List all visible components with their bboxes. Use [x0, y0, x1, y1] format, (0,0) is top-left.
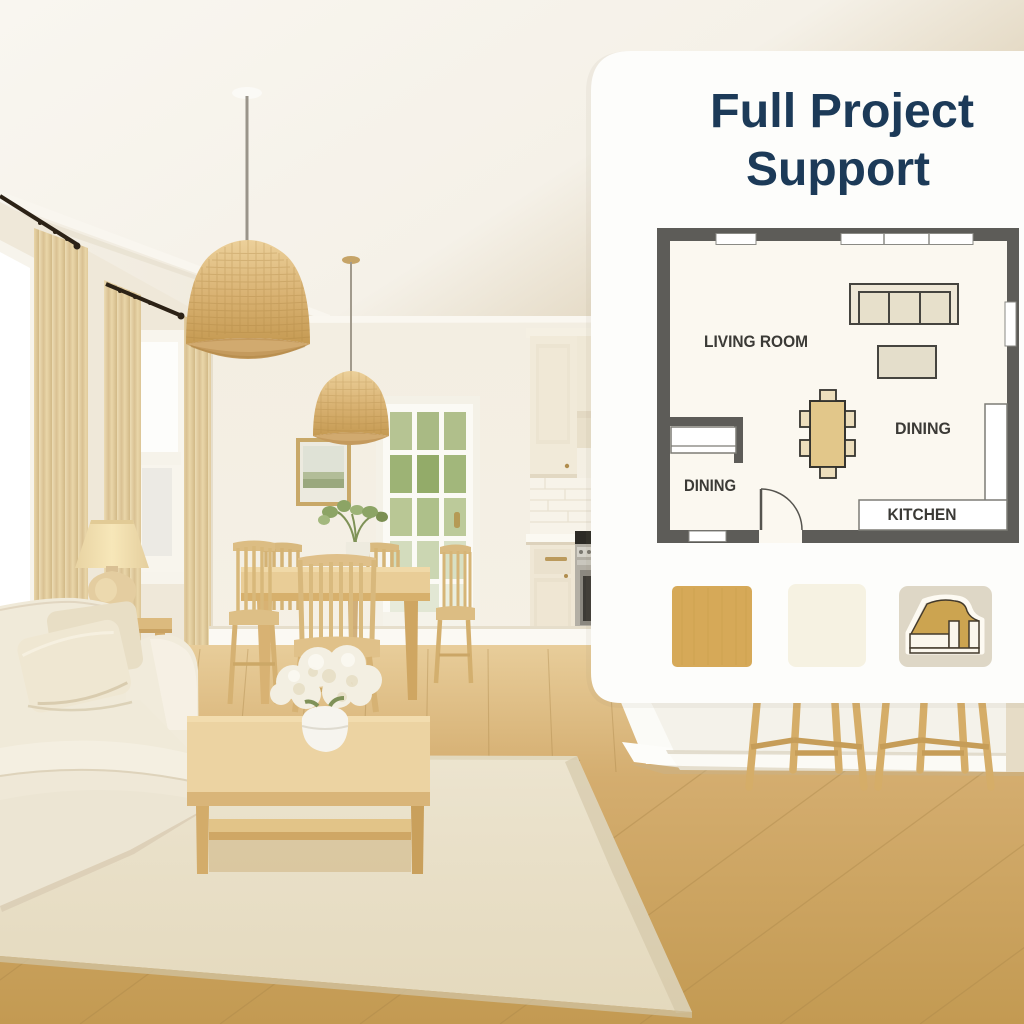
svg-text:DINING: DINING — [684, 477, 736, 495]
svg-text:LIVING ROOM: LIVING ROOM — [704, 333, 808, 351]
svg-text:Support: Support — [746, 143, 930, 196]
svg-text:DINING: DINING — [895, 420, 951, 438]
svg-text:KITCHEN: KITCHEN — [888, 506, 957, 524]
svg-text:Full Project: Full Project — [710, 85, 974, 138]
